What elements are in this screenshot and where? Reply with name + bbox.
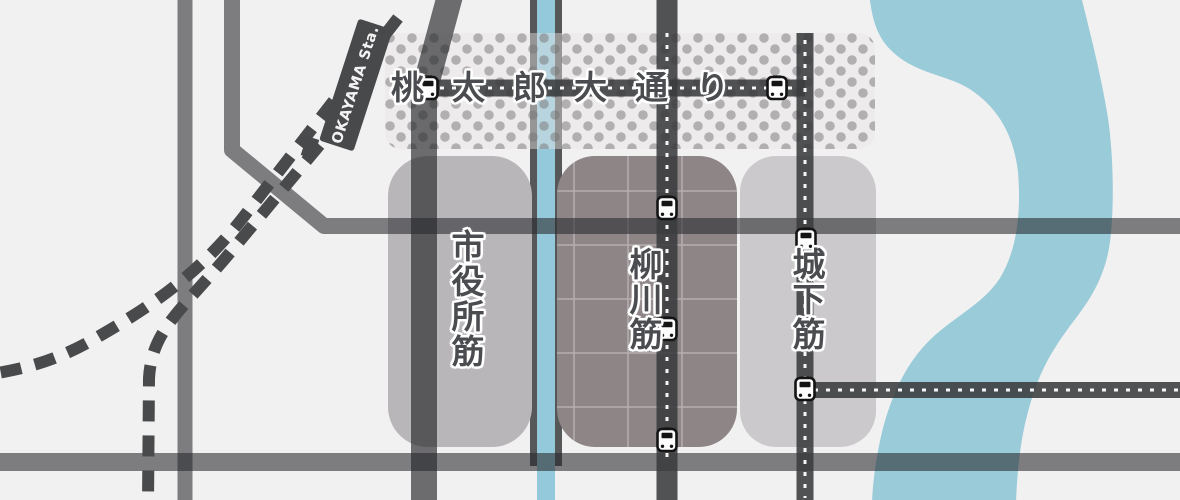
map-canvas [0, 0, 1180, 500]
tram-stop-icon [768, 75, 787, 99]
tram-stop-icon [419, 75, 438, 99]
tram-stop-icon [797, 227, 816, 251]
tram-stop-icon [658, 316, 677, 340]
tram-stop-icon [658, 427, 677, 451]
tram-stop-icon [796, 376, 815, 400]
block-yanagawa [557, 156, 737, 447]
block-city-hall [388, 156, 532, 447]
okayama-street-map: OKAYAMA Sta. 桃太郎大通り 市役所筋 柳川筋 城下筋 [0, 0, 1180, 500]
tram-stop-icon [658, 195, 677, 219]
